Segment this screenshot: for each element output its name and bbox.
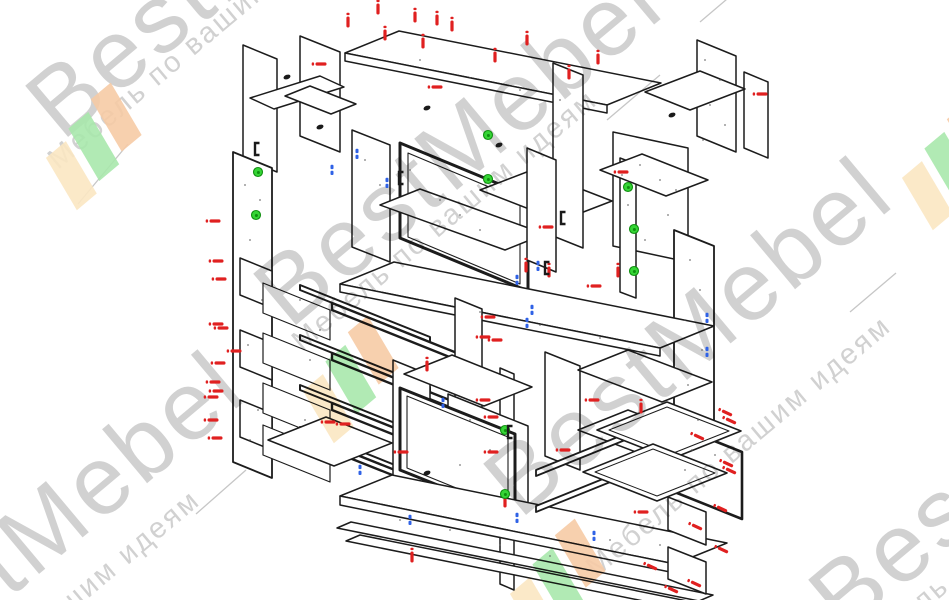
assembly-drawing-canvas: BestMebelBestMebelBestMebelBestMebelBest… [0, 0, 949, 600]
wardrobe-exploded-assembly-drawing: BestMebelBestMebelBestMebelBestMebelBest… [0, 0, 949, 600]
upper-right-side-panel [744, 72, 768, 158]
screw-marker-icon [214, 326, 229, 329]
dowel-marker-icon [537, 261, 540, 271]
pilot-hole-dot [702, 139, 704, 141]
pilot-hole-dot [249, 439, 251, 441]
pilot-hole-dot [304, 419, 306, 421]
screw-marker-icon [634, 510, 649, 513]
pilot-hole-dot [621, 174, 623, 176]
pilot-hole-dot [247, 344, 249, 346]
pilot-hole-dot [639, 164, 641, 166]
dowel-marker-icon [331, 165, 334, 175]
screw-marker-icon [718, 408, 733, 417]
screw-marker-icon [476, 398, 491, 401]
screw-marker-icon [450, 17, 453, 32]
screw-marker-icon [481, 315, 496, 318]
pilot-hole-dot [687, 384, 689, 386]
watermark-dash [850, 273, 896, 312]
pilot-hole-dot [719, 79, 721, 81]
pilot-hole-dot [469, 419, 471, 421]
pilot-hole-dot [699, 289, 701, 291]
cam-lock-marker-icon [630, 225, 639, 234]
pilot-hole-dot [309, 359, 311, 361]
pilot-hole-dot [519, 89, 521, 91]
screw-marker-icon [413, 8, 416, 23]
screw-marker-icon [525, 31, 528, 46]
screw-marker-icon [556, 448, 571, 451]
screw-marker-icon [346, 13, 349, 28]
screw-marker-icon [585, 398, 600, 401]
pilot-hole-dot [261, 299, 263, 301]
screw-marker-icon [421, 34, 424, 49]
pilot-hole-dot [684, 319, 686, 321]
pilot-hole-dot [469, 77, 471, 79]
pilot-hole-dot [689, 259, 691, 261]
pilot-hole-dot [704, 59, 706, 61]
pilot-hole-dot [257, 409, 259, 411]
screw-marker-icon [211, 361, 226, 364]
screw-marker-icon [212, 277, 227, 280]
pilot-hole-dot [479, 229, 481, 231]
screw-marker-icon [567, 65, 570, 80]
cam-lock-marker-icon [630, 267, 639, 276]
cam-lock-marker-icon [624, 183, 633, 192]
pilot-hole-dot [599, 337, 601, 339]
dowel-marker-icon [359, 465, 362, 475]
screw-marker-icon [484, 450, 499, 453]
pilot-hole-dot [299, 299, 301, 301]
screw-marker-icon [321, 420, 336, 423]
pilot-hole-dot [459, 214, 461, 216]
screw-marker-icon [206, 380, 221, 383]
pilot-hole-dot [409, 169, 411, 171]
screw-marker-icon [410, 548, 413, 563]
pilot-hole-dot [659, 544, 661, 546]
screw-marker-icon [425, 357, 428, 372]
screw-marker-icon [376, 0, 379, 15]
cam-lock-marker-icon [254, 168, 263, 177]
pilot-hole-dot [364, 159, 366, 161]
screw-marker-icon [539, 225, 554, 228]
pilot-hole-dot [709, 104, 711, 106]
pilot-hole-dot [499, 544, 501, 546]
screw-marker-icon [476, 335, 491, 338]
pilot-hole-dot [724, 124, 726, 126]
pilot-hole-dot [609, 539, 611, 541]
hinge-fitting-icon [283, 74, 291, 81]
watermark-dash [700, 0, 740, 22]
pilot-hole-dot [549, 555, 551, 557]
screw-marker-icon [484, 415, 499, 418]
screw-marker-icon [206, 219, 221, 222]
cam-lock-marker-icon [484, 131, 493, 140]
screw-marker-icon [204, 418, 219, 421]
screw-marker-icon [209, 259, 224, 262]
pilot-hole-dot [667, 214, 669, 216]
pilot-hole-dot [319, 329, 321, 331]
screw-marker-icon [428, 85, 443, 88]
pilot-hole-dot [329, 389, 331, 391]
screw-marker-icon [722, 416, 737, 425]
screw-marker-icon [204, 395, 219, 398]
pilot-hole-dot [459, 464, 461, 466]
screw-marker-icon [383, 26, 386, 41]
pilot-hole-dot [399, 519, 401, 521]
pilot-hole-dot [701, 349, 703, 351]
pilot-hole-dot [249, 239, 251, 241]
screw-marker-icon [753, 92, 768, 95]
screw-marker-icon [336, 422, 351, 425]
pilot-hole-dot [659, 179, 661, 181]
screw-marker-icon [639, 399, 642, 414]
screw-marker-icon [587, 284, 602, 287]
pilot-hole-dot [627, 204, 629, 206]
screw-marker-icon [524, 258, 527, 273]
watermark-dash [196, 470, 246, 514]
pilot-hole-dot [539, 324, 541, 326]
pilot-hole-dot [439, 199, 441, 201]
screw-marker-icon [547, 263, 550, 278]
screw-marker-icon [208, 436, 223, 439]
screw-marker-icon [616, 263, 619, 278]
screw-marker-icon [614, 170, 629, 173]
hinge-fitting-icon [668, 112, 676, 119]
pilot-hole-dot [479, 311, 481, 313]
screw-marker-icon [493, 48, 496, 63]
pilot-hole-dot [244, 184, 246, 186]
pilot-hole-dot [419, 59, 421, 61]
screw-marker-icon [209, 322, 224, 325]
pilot-hole-dot [697, 419, 699, 421]
pilot-hole-dot [644, 239, 646, 241]
pilot-hole-dot [714, 454, 716, 456]
screw-marker-icon [596, 50, 599, 65]
screw-marker-icon [488, 338, 503, 341]
screw-marker-icon [312, 62, 327, 65]
pilot-hole-dot [379, 184, 381, 186]
cam-lock-marker-icon [501, 490, 510, 499]
pilot-hole-dot [691, 449, 693, 451]
cam-lock-marker-icon [484, 175, 493, 184]
screw-marker-icon [394, 450, 409, 453]
pilot-hole-dot [259, 199, 261, 201]
screw-marker-icon [209, 389, 224, 392]
cam-lock-marker-icon [252, 211, 261, 220]
pilot-hole-dot [675, 189, 677, 191]
pilot-hole-dot [559, 99, 561, 101]
screw-marker-icon [435, 11, 438, 26]
pilot-hole-dot [419, 299, 421, 301]
watermark-brand-text: BestMebel [788, 251, 949, 600]
pilot-hole-dot [449, 529, 451, 531]
screw-marker-icon [227, 349, 242, 352]
pilot-hole-dot [684, 469, 686, 471]
